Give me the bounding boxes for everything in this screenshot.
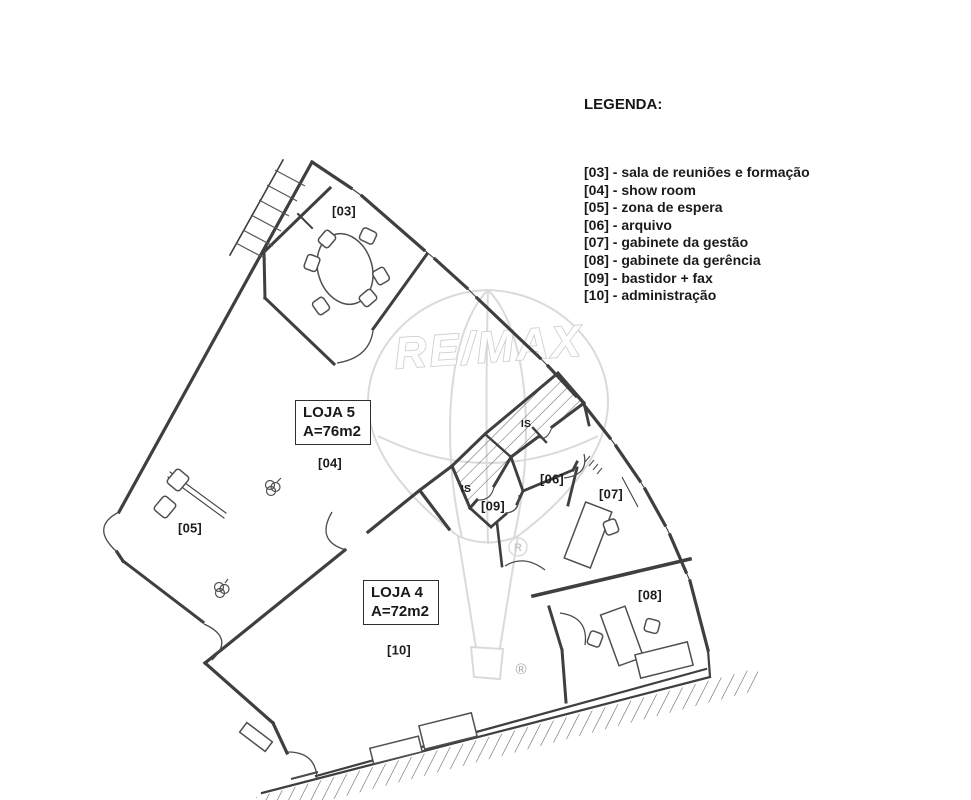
room-label-03: [03] [332, 204, 356, 219]
balloon-r-letter: R [514, 542, 522, 554]
floor-plan-drawing: RE/MAX R ® [0, 0, 971, 800]
registered-mark: ® [515, 661, 526, 678]
loja4-name: LOJA 4 [371, 583, 429, 602]
room0708-wall [533, 559, 690, 596]
desk-07 [564, 502, 612, 568]
dividing-wall [205, 466, 452, 663]
outer-wall-left [117, 162, 312, 561]
floor-plan-page: RE/MAX R ® [0, 0, 971, 800]
window-07 [622, 477, 638, 507]
room08-west-wall [549, 607, 566, 702]
legend-item: [08] - gabinete da gerência [584, 252, 810, 270]
legend: [03] - sala de reuniões e formação [04] … [584, 164, 810, 305]
loja4-west-wall [205, 663, 287, 753]
loja5-info-box: LOJA 5 A=76m2 [295, 400, 371, 445]
legend-item: [05] - zona de espera [584, 199, 810, 217]
door-room03 [337, 331, 373, 363]
plants [215, 478, 282, 598]
legend-item: [09] - bastidor + fax [584, 270, 810, 288]
apex-wall-stub [298, 214, 312, 228]
legend-item: [03] - sala de reuniões e formação [584, 164, 810, 182]
chair-08-a [586, 630, 603, 648]
corridor-wall [497, 523, 502, 566]
room-label-08: [08] [638, 588, 662, 603]
sanitary-rooms-hatch [452, 373, 584, 508]
door-threshold-bottom [291, 772, 318, 779]
door-loja4-main [326, 512, 346, 550]
loja5-area: A=76m2 [303, 422, 361, 441]
is-label-lower: IS [461, 483, 471, 495]
loja4-info-box: LOJA 4 A=72m2 [363, 580, 439, 625]
room-label-07: [07] [599, 487, 623, 502]
legend-item: [07] - gabinete da gestão [584, 234, 810, 252]
plant-10 [215, 579, 230, 598]
door-bottom-entrance [288, 752, 317, 779]
balloon-basket [471, 647, 503, 679]
loja5-name: LOJA 5 [303, 403, 361, 422]
exterior-ground-hatch [256, 668, 758, 800]
plant-04 [266, 478, 282, 496]
exterior-step [240, 723, 273, 752]
room05-bottom-wall [123, 561, 203, 622]
legend-item: [10] - administração [584, 287, 810, 305]
door-corridor [505, 561, 545, 570]
room-label-04: [04] [318, 456, 342, 471]
legend-title: LEGENDA: [584, 96, 662, 113]
room-label-06: [06] [540, 472, 564, 487]
room-label-10: [10] [387, 643, 411, 658]
is-label-upper: IS [521, 418, 531, 430]
room-label-09: [09] [481, 499, 505, 514]
chair-08-b [644, 618, 661, 634]
desk-08-b [635, 642, 693, 678]
remax-brand-watermark: RE/MAX [393, 316, 585, 378]
room-label-05: [05] [178, 521, 202, 536]
loja4-area: A=72m2 [371, 602, 429, 621]
door-entrance-left [104, 512, 119, 551]
door-room08 [560, 613, 585, 645]
waiting-chairs [153, 468, 190, 519]
legend-item: [06] - arquivo [584, 217, 810, 235]
legend-item: [04] - show room [584, 182, 810, 200]
